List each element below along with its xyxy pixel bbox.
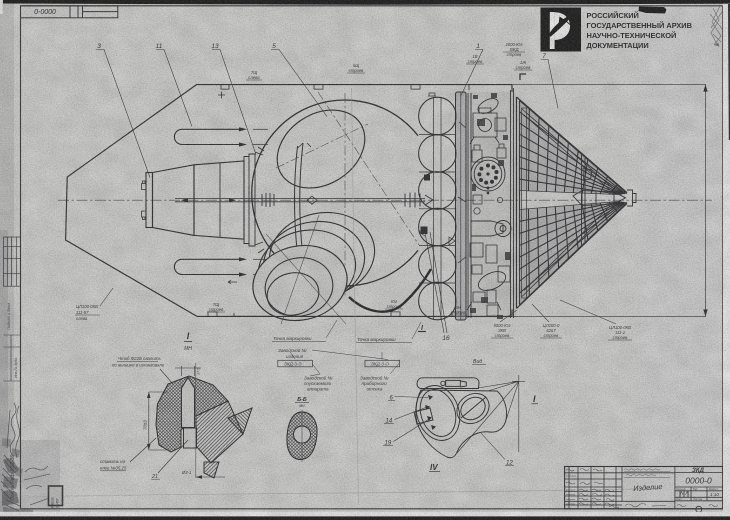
svg-text:строев: строев	[349, 68, 365, 73]
svg-text:слева: слева	[76, 316, 88, 321]
svg-text:13: 13	[211, 43, 219, 50]
svg-text:отсека: отсека	[367, 387, 383, 392]
svg-text:Вид: Вид	[473, 359, 482, 365]
svg-text:Заводской №: Заводской №	[304, 375, 333, 381]
svg-text:5: 5	[272, 43, 276, 50]
svg-text:Литера: Литера	[676, 487, 686, 491]
svg-text:16: 16	[442, 335, 450, 342]
svg-text:строев: строев	[544, 333, 560, 338]
svg-text:70±3: 70±3	[143, 420, 148, 430]
svg-text:ДОКУМЕНТАЦИИ: ДОКУМЕНТАЦИИ	[587, 41, 649, 50]
svg-text:строев: строев	[209, 307, 225, 312]
svg-text:ЗКД-3-О: ЗКД-3-О	[371, 361, 389, 366]
svg-text:Чтоб Ф22Б свалить: Чтоб Ф22Б свалить	[118, 356, 162, 361]
svg-text:строев: строев	[387, 304, 403, 309]
svg-text:Лист: Лист	[676, 497, 683, 501]
svg-text:ставить на: ставить на	[100, 459, 126, 464]
svg-text:Точка маркировки: Точка маркировки	[357, 337, 396, 342]
svg-text:РОССИЙСКИЙ: РОССИЙСКИЙ	[587, 11, 639, 20]
svg-text:Заводской №: Заводской №	[360, 375, 389, 381]
svg-text:111-57: 111-57	[76, 310, 89, 315]
svg-text:3: 3	[97, 43, 101, 50]
svg-text:IV: IV	[430, 463, 438, 472]
svg-text:11: 11	[156, 43, 163, 50]
svg-text:1:10: 1:10	[710, 492, 719, 497]
svg-text:приборного: приборного	[362, 381, 388, 386]
svg-text:МН: МН	[184, 346, 192, 352]
svg-text:строев: строев	[516, 65, 532, 70]
svg-text:ГОСУДАРСТВЕННЫЙ АРХИВ: ГОСУДАРСТВЕННЫЙ АРХИВ	[587, 21, 692, 30]
svg-text:17.5: 17.5	[197, 367, 201, 375]
svg-text:Точка маркировки: Точка маркировки	[273, 336, 312, 341]
svg-text:0-0000: 0-0000	[34, 9, 56, 16]
svg-text:ЦЛ100-0КВ: ЦЛ100-0КВ	[76, 304, 98, 309]
svg-text:1: 1	[476, 43, 480, 50]
svg-text:строев: строев	[495, 333, 511, 338]
svg-text:Вес: Вес	[693, 487, 698, 491]
svg-text:НАУЧНО-ТЕХНИЧЕСКОЙ: НАУЧНО-ТЕХНИЧЕСКОЙ	[587, 31, 677, 40]
svg-text:ЗКД: ЗКД	[692, 468, 705, 474]
svg-text:Масшт.: Масшт.	[709, 487, 719, 491]
svg-text:№457: №457	[56, 498, 60, 507]
svg-text:спускаемого: спускаемого	[304, 381, 332, 386]
svg-text:слева: слева	[248, 75, 260, 80]
svg-text:ЗКД-3-Э: ЗКД-3-Э	[284, 361, 302, 366]
svg-text:строев: строев	[613, 335, 629, 340]
svg-text:по вышине в шланговале: по вышине в шланговале	[112, 363, 165, 368]
svg-text:Инв.№ дубл.: Инв.№ дубл.	[14, 357, 18, 378]
svg-text:мн: мн	[299, 403, 305, 408]
svg-text:изделия: изделия	[286, 354, 304, 359]
svg-text:строев: строев	[468, 59, 484, 64]
svg-text:Подпись и дата: Подпись и дата	[7, 303, 11, 330]
svg-text:Ø3-1: Ø3-1	[181, 470, 191, 475]
svg-text:строев: строев	[507, 52, 523, 57]
svg-text:аппарата: аппарата	[307, 387, 329, 392]
svg-text:Зак.№ Реф-1/52-36: Зак.№ Реф-1/52-36	[10, 455, 16, 500]
svg-text:МАШ.Б: МАШ.Б	[51, 497, 55, 509]
svg-text:Заводской №: Заводской №	[278, 347, 307, 353]
svg-text:строев: строев	[451, 310, 467, 315]
svg-text:Листов: Листов	[693, 497, 703, 501]
svg-text:0000-0: 0000-0	[685, 476, 712, 486]
svg-text:7: 7	[542, 53, 546, 60]
svg-text:клее №05.25: клее №05.25	[100, 466, 127, 471]
